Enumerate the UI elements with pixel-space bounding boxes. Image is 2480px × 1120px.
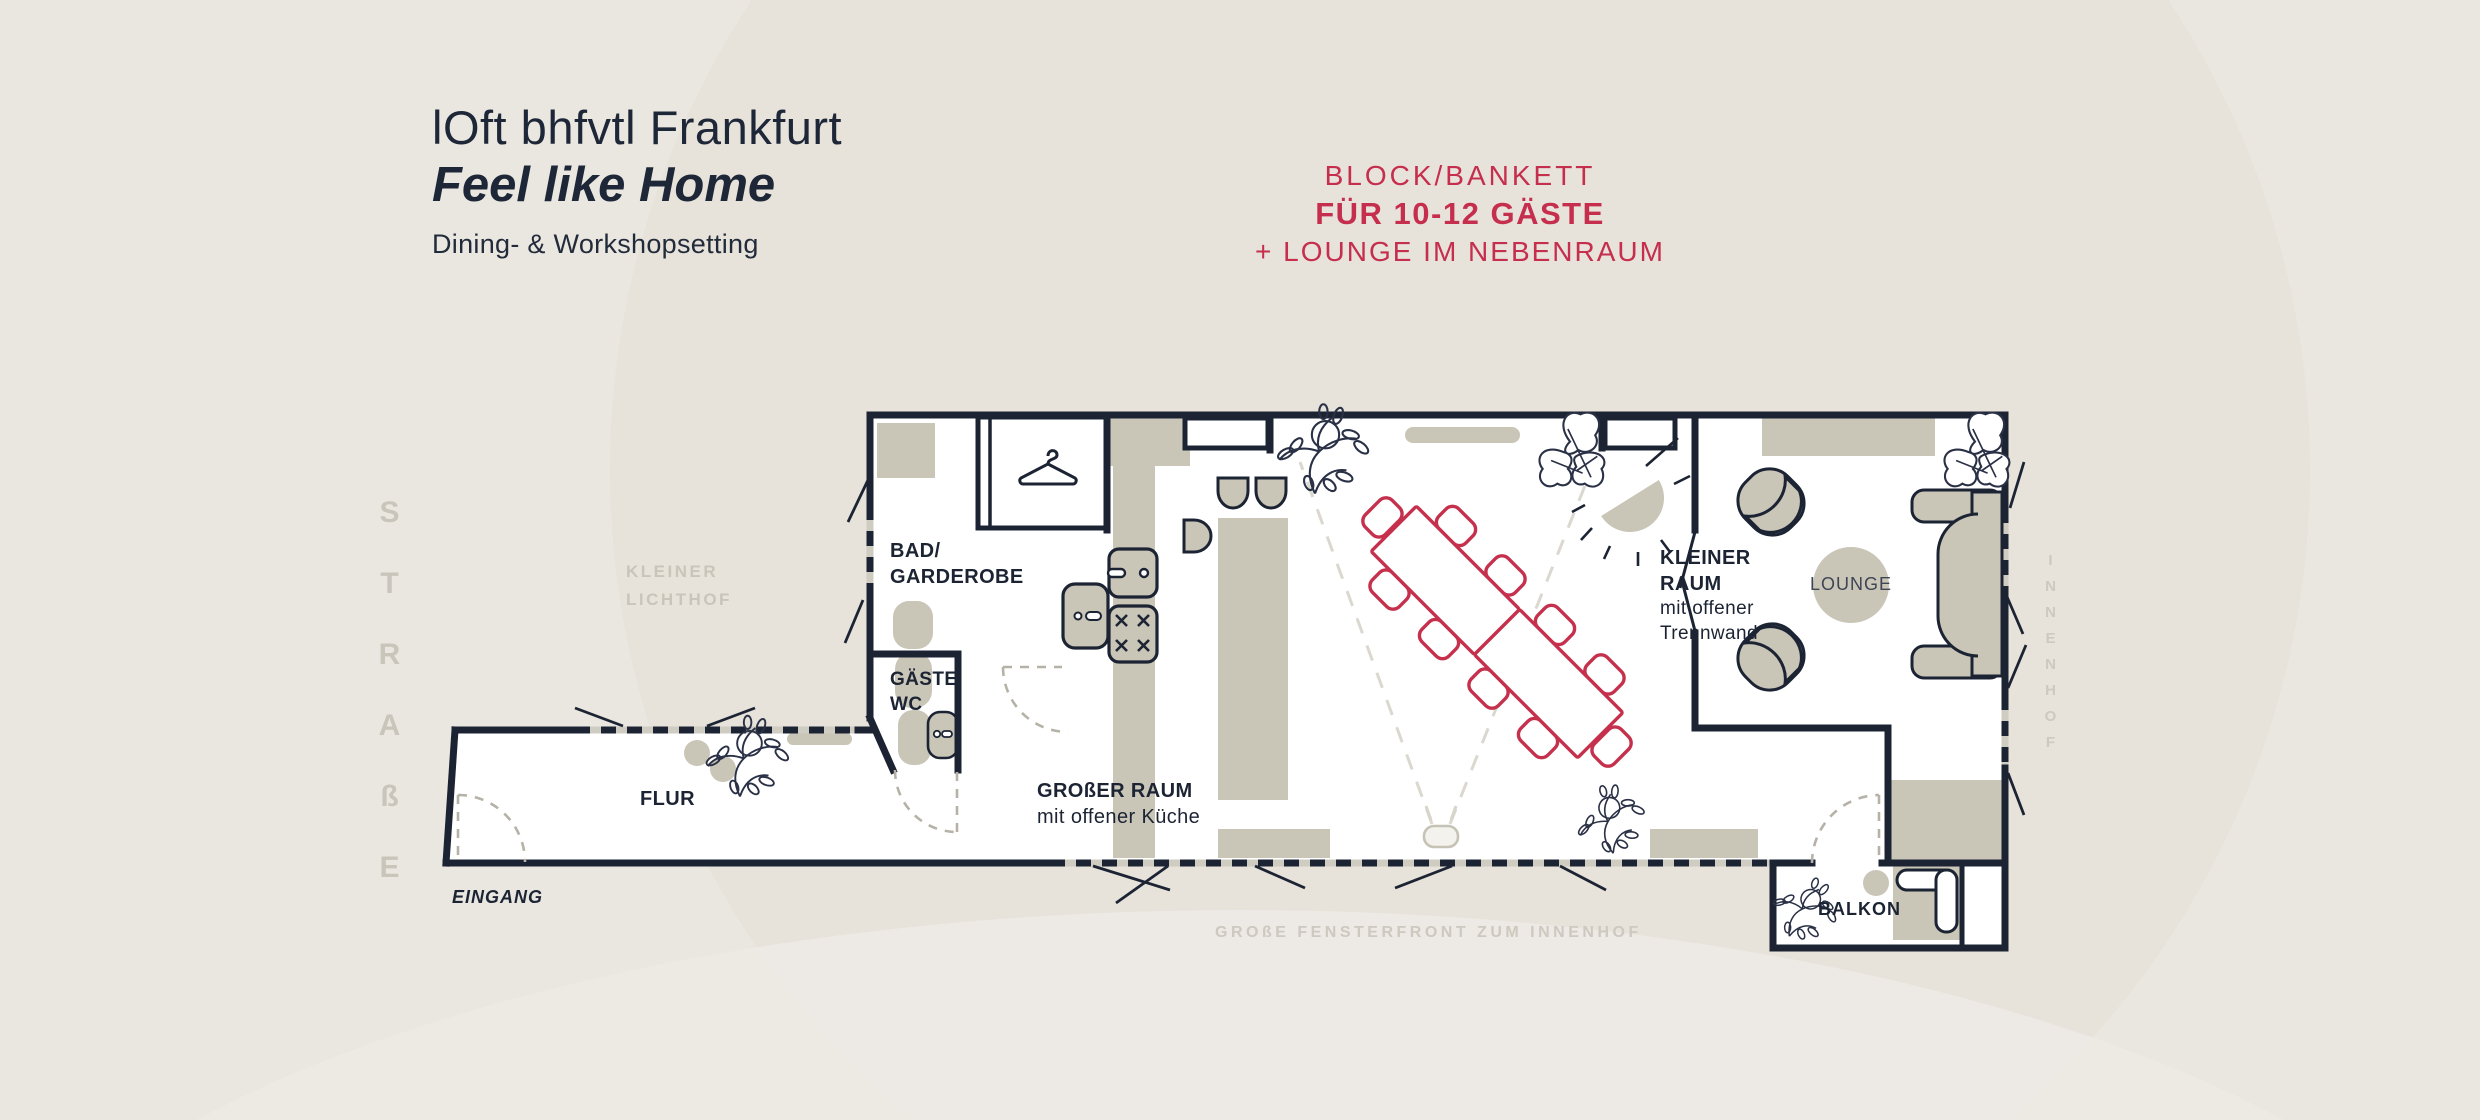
window-bench: [1650, 829, 1758, 858]
page-title: lOft bhfvtl Frankfurt: [432, 100, 842, 155]
stove-icon: [1109, 606, 1157, 662]
shower-icon: [877, 423, 935, 478]
bar-stool-icon: [1218, 478, 1248, 508]
washbasin-icon: [928, 712, 958, 758]
outdoor-label-fensterfront: GROßE FENSTERFRONT ZUM INNENHOF: [1215, 924, 1642, 942]
room-label-wc: GÄSTE WC: [890, 668, 957, 717]
wall-shelf: [787, 733, 852, 745]
room-label-bad: BAD/ GARDEROBE: [890, 538, 1024, 590]
room-label-grosser-raum: GROßER RAUM mit offener Küche: [1037, 778, 1200, 830]
page-subtitle: Feel like Home: [432, 157, 842, 213]
room-label-balkon: BALKON: [1818, 898, 1901, 921]
bar-stool-icon: [1184, 520, 1211, 552]
page-tagline: Dining- & Workshopsetting: [432, 229, 842, 260]
title-block: lOft bhfvtl Frankfurt Feel like Home Din…: [432, 100, 842, 260]
room-label-kleiner-raum: KLEINER RAUM mit offener Trennwand: [1660, 545, 1758, 646]
toilet-icon: [893, 601, 933, 649]
wardrobe: [978, 417, 1107, 528]
outdoor-label-lichthof: KLEINER LICHTHOF: [626, 558, 732, 614]
bar-stool-icon: [1256, 478, 1286, 508]
room-label-lounge: LOUNGE: [1806, 574, 1896, 595]
balcony-table-icon: [1863, 870, 1889, 896]
sideboard-icon: [1890, 780, 2003, 861]
room-label-flur: FLUR: [640, 786, 695, 812]
sideboard-icon: [1762, 418, 1935, 456]
window-bench: [1218, 829, 1330, 858]
kitchen-island-icon: [1218, 518, 1288, 800]
banner-line2: FÜR 10-12 GÄSTE: [1160, 196, 1760, 232]
room-label-eingang: EINGANG: [452, 886, 543, 909]
outdoor-label-innenhof: INNENHOF: [2042, 552, 2059, 760]
banner-line3: + LOUNGE IM NEBENRAUM: [1160, 236, 1760, 268]
banner-line1: BLOCK/BANKETT: [1160, 160, 1760, 192]
outdoor-label-strasse: STRAßE: [372, 496, 406, 922]
capacity-banner: BLOCK/BANKETT FÜR 10-12 GÄSTE + LOUNGE I…: [1160, 160, 1760, 268]
sideboard-icon: [1405, 427, 1520, 443]
floorplan-poster: lOft bhfvtl Frankfurt Feel like Home Din…: [0, 0, 2480, 1120]
